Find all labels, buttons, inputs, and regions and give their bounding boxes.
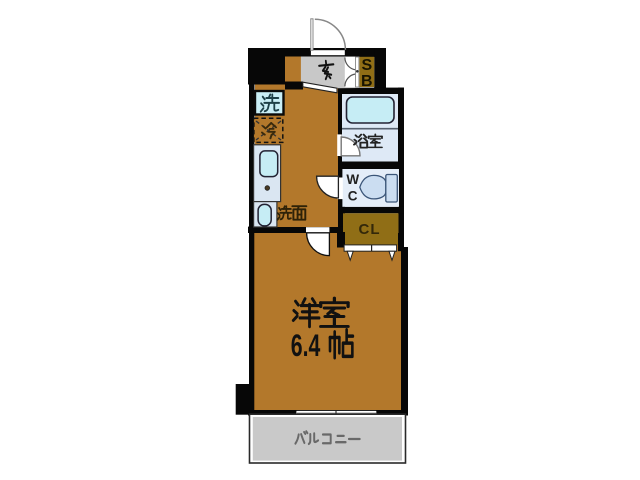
svg-text:S: S: [361, 57, 372, 74]
svg-text:C: C: [348, 188, 358, 203]
svg-text:6.4: 6.4: [291, 327, 321, 363]
svg-text:W: W: [346, 172, 359, 187]
svg-text:CL: CL: [359, 221, 381, 238]
svg-text:B: B: [361, 73, 373, 90]
